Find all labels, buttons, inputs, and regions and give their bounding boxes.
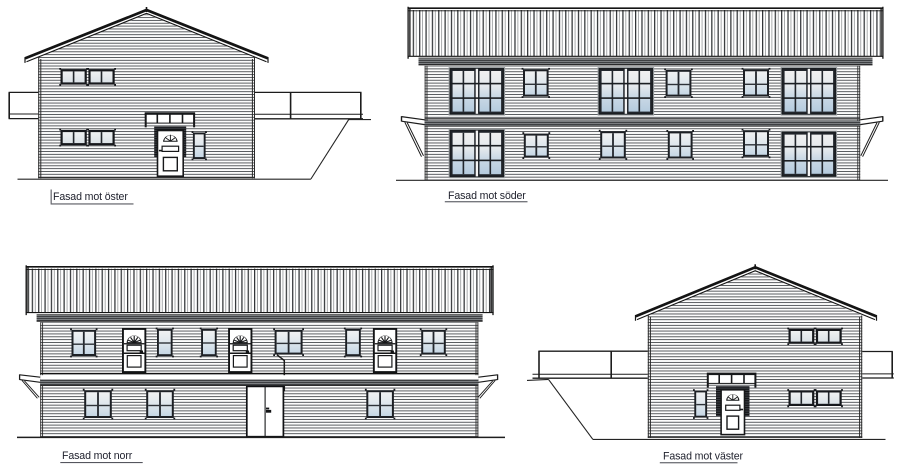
svg-text:Fasad mot öster: Fasad mot öster bbox=[53, 191, 128, 203]
svg-text:Fasad mot söder: Fasad mot söder bbox=[448, 190, 526, 202]
svg-text:Fasad mot väster: Fasad mot väster bbox=[663, 450, 744, 462]
svg-text:Fasad mot norr: Fasad mot norr bbox=[62, 450, 133, 462]
